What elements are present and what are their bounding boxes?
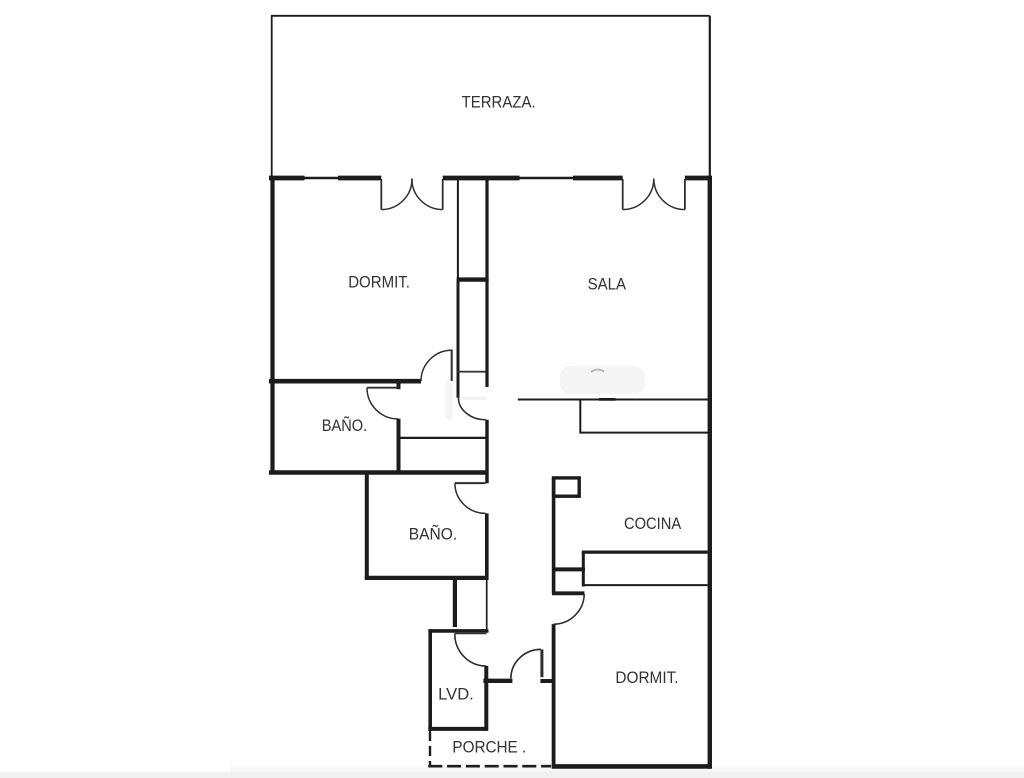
svg-text:TERRAZA.: TERRAZA. — [462, 94, 536, 112]
svg-text:DORMIT.: DORMIT. — [615, 669, 678, 687]
svg-text:BAÑO.: BAÑO. — [322, 415, 367, 435]
svg-text:COCINA: COCINA — [624, 515, 681, 533]
svg-text:PORCHE .: PORCHE . — [452, 739, 526, 757]
svg-text:SALA: SALA — [588, 275, 626, 293]
svg-text:LVD.: LVD. — [438, 686, 474, 704]
svg-text:BAÑO.: BAÑO. — [409, 524, 457, 544]
svg-text:DORMIT.: DORMIT. — [348, 273, 410, 291]
